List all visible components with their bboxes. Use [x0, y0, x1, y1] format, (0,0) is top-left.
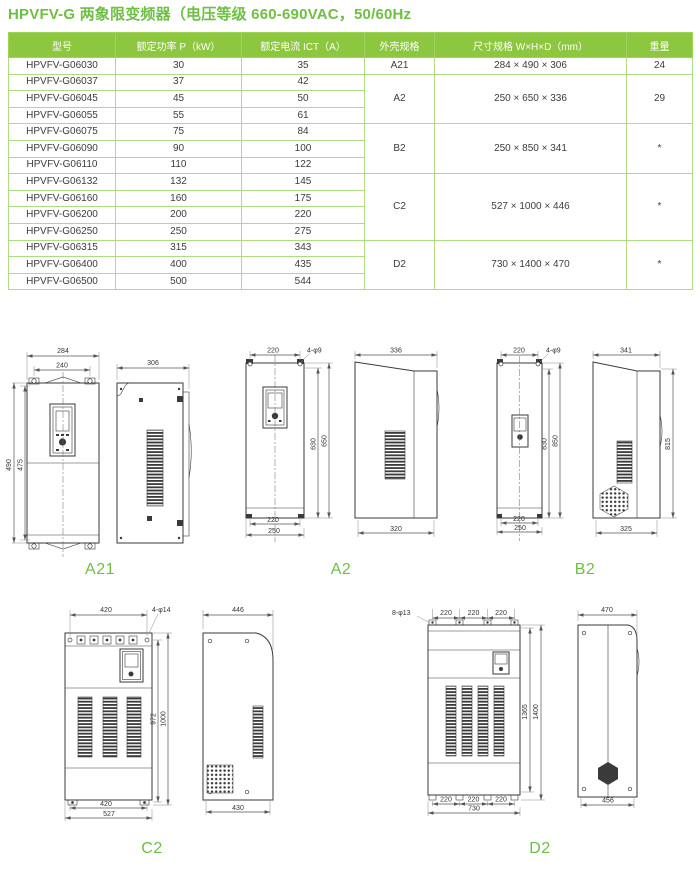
b2-width-mount: 220	[513, 348, 525, 355]
model-cell: HPVFV-G06315	[9, 240, 116, 257]
a2-height-mount: 630	[311, 438, 318, 450]
power-cell: 45	[116, 91, 242, 108]
d2-bottom-seg3: 220	[495, 797, 507, 804]
current-cell: 84	[242, 124, 365, 141]
a21-side-depth: 306	[147, 360, 159, 367]
c2-side-depth-bottom: 430	[232, 805, 244, 812]
figure-d2: 8-φ13 220 220 220 1365 1400 220 220 220 …	[392, 607, 639, 816]
d2-top-seg1: 220	[440, 610, 452, 617]
power-cell: 55	[116, 107, 242, 124]
a2-width-mount: 220	[267, 348, 279, 355]
current-cell: 35	[242, 58, 365, 75]
figure-label-a2: A2	[299, 561, 383, 579]
a21-height-outer: 490	[6, 459, 13, 471]
b2-height-outer: 850	[553, 435, 560, 447]
d2-side-depth-bottom: 456	[602, 798, 614, 805]
dimensions-cell: 527 × 1000 × 446	[435, 174, 627, 240]
power-cell: 37	[116, 74, 242, 91]
table-row: HPVFV-G06315 315 343 D2 730 × 1400 × 470…	[9, 240, 693, 257]
weight-cell: 29	[627, 74, 693, 124]
model-cell: HPVFV-G06075	[9, 124, 116, 141]
d2-top-seg3: 220	[495, 610, 507, 617]
table-row: HPVFV-G06030 30 35 A21 284 × 490 × 306 2…	[9, 58, 693, 75]
d2-holes: 8-φ13	[392, 610, 411, 617]
power-cell: 90	[116, 140, 242, 157]
model-cell: HPVFV-G06045	[9, 91, 116, 108]
current-cell: 220	[242, 207, 365, 224]
table-row: HPVFV-G06037 37 42 A2 250 × 650 × 336 29	[9, 74, 693, 91]
frame-cell: A21	[365, 58, 435, 75]
d2-top-seg2: 220	[468, 610, 480, 617]
power-cell: 30	[116, 58, 242, 75]
current-cell: 435	[242, 257, 365, 274]
dimensions-cell: 284 × 490 × 306	[435, 58, 627, 75]
power-cell: 200	[116, 207, 242, 224]
figure-label-d2: D2	[498, 840, 582, 858]
current-cell: 145	[242, 174, 365, 191]
a2-side-depth-bottom: 320	[390, 526, 402, 533]
current-cell: 343	[242, 240, 365, 257]
a2-side-depth-top: 336	[390, 348, 402, 355]
figure-c2: 420 4-φ14 972 1000 420 527 446 430	[65, 607, 273, 821]
current-cell: 61	[242, 107, 365, 124]
power-cell: 160	[116, 190, 242, 207]
a2-height-outer: 650	[322, 435, 329, 447]
model-cell: HPVFV-G06055	[9, 107, 116, 124]
d2-height-mount: 1365	[522, 704, 529, 720]
b2-holes: 4-φ9	[546, 348, 561, 355]
d2-bottom-seg2: 220	[468, 797, 480, 804]
dimensions-cell: 730 × 1400 × 470	[435, 240, 627, 290]
model-cell: HPVFV-G06037	[9, 74, 116, 91]
power-cell: 500	[116, 273, 242, 290]
a2-holes: 4-φ9	[307, 348, 322, 355]
current-cell: 175	[242, 190, 365, 207]
c2-side-depth-top: 446	[232, 607, 244, 614]
b2-side-depth-top: 341	[620, 348, 632, 355]
d2-side-depth-top: 470	[601, 607, 613, 614]
dimensions-cell: 250 × 850 × 341	[435, 124, 627, 174]
c2-height-mount: 972	[151, 713, 158, 725]
figure-label-c2: C2	[110, 840, 194, 858]
a2-bottom-outer: 250	[268, 528, 280, 535]
model-cell: HPVFV-G06200	[9, 207, 116, 224]
frame-cell: A2	[365, 74, 435, 124]
current-cell: 275	[242, 223, 365, 240]
model-cell: HPVFV-G06132	[9, 174, 116, 191]
figure-b2: 220 4-φ9 830 850 220 250 341 815 325	[497, 348, 677, 542]
power-cell: 75	[116, 124, 242, 141]
power-cell: 110	[116, 157, 242, 174]
b2-bottom-outer: 250	[514, 525, 526, 532]
model-cell: HPVFV-G06500	[9, 273, 116, 290]
current-cell: 122	[242, 157, 365, 174]
power-cell: 400	[116, 257, 242, 274]
c2-bottom-mount: 420	[100, 801, 112, 808]
spec-table: 型号 额定功率 P（kW） 额定电流 ICT（A） 外壳规格 尺寸规格 W×H×…	[8, 32, 693, 290]
power-cell: 250	[116, 223, 242, 240]
figure-a2: 220 4-φ9 630 650 220 250 336 320	[246, 348, 439, 543]
weight-cell: *	[627, 124, 693, 174]
figure-label-b2: B2	[543, 561, 627, 579]
current-cell: 42	[242, 74, 365, 91]
weight-cell: *	[627, 240, 693, 290]
frame-cell: D2	[365, 240, 435, 290]
current-cell: 50	[242, 91, 365, 108]
header-row: 型号 额定功率 P（kW） 额定电流 ICT（A） 外壳规格 尺寸规格 W×H×…	[9, 33, 693, 58]
dimensions-cell: 250 × 650 × 336	[435, 74, 627, 124]
d2-height-outer: 1400	[533, 704, 540, 720]
frame-cell: C2	[365, 174, 435, 240]
col-header-current: 额定电流 ICT（A）	[242, 33, 365, 58]
frame-cell: B2	[365, 124, 435, 174]
b2-height-mount: 830	[542, 438, 549, 450]
b2-bottom-mount: 220	[513, 516, 525, 523]
b2-side-depth-bottom: 325	[620, 526, 632, 533]
a21-height-mount: 475	[18, 459, 25, 471]
d2-bottom-seg1: 220	[440, 797, 452, 804]
col-header-dimensions: 尺寸规格 W×H×D（mm）	[435, 33, 627, 58]
model-cell: HPVFV-G06110	[9, 157, 116, 174]
col-header-model: 型号	[9, 33, 116, 58]
model-cell: HPVFV-G06400	[9, 257, 116, 274]
model-cell: HPVFV-G06090	[9, 140, 116, 157]
model-cell: HPVFV-G06030	[9, 58, 116, 75]
dimension-drawings: 284 240 490 475 306	[0, 335, 700, 868]
col-header-weight: 重量	[627, 33, 693, 58]
power-cell: 315	[116, 240, 242, 257]
page-title: HPVFV-G 两象限变频器（电压等级 660-690VAC，50/60Hz	[8, 3, 411, 24]
c2-height-outer: 1000	[161, 711, 168, 727]
table-row: HPVFV-G06075 75 84 B2 250 × 850 × 341 *	[9, 124, 693, 141]
model-cell: HPVFV-G06160	[9, 190, 116, 207]
a2-bottom-mount: 220	[267, 517, 279, 524]
c2-holes: 4-φ14	[152, 607, 171, 614]
a21-width-outer: 284	[57, 348, 69, 355]
model-cell: HPVFV-G06250	[9, 223, 116, 240]
current-cell: 100	[242, 140, 365, 157]
table-row: HPVFV-G06132 132 145 C2 527 × 1000 × 446…	[9, 174, 693, 191]
figure-label-a21: A21	[58, 561, 142, 579]
weight-cell: 24	[627, 58, 693, 75]
figure-a21: 284 240 490 475 306	[6, 348, 191, 557]
col-header-power: 额定功率 P（kW）	[116, 33, 242, 58]
current-cell: 544	[242, 273, 365, 290]
col-header-frame: 外壳规格	[365, 33, 435, 58]
power-cell: 132	[116, 174, 242, 191]
a21-width-mount: 240	[56, 363, 68, 370]
c2-bottom-outer: 527	[103, 811, 115, 818]
b2-side-height: 815	[665, 438, 672, 450]
weight-cell: *	[627, 174, 693, 240]
d2-bottom-total: 730	[468, 806, 480, 813]
c2-width-mount: 420	[100, 607, 112, 614]
